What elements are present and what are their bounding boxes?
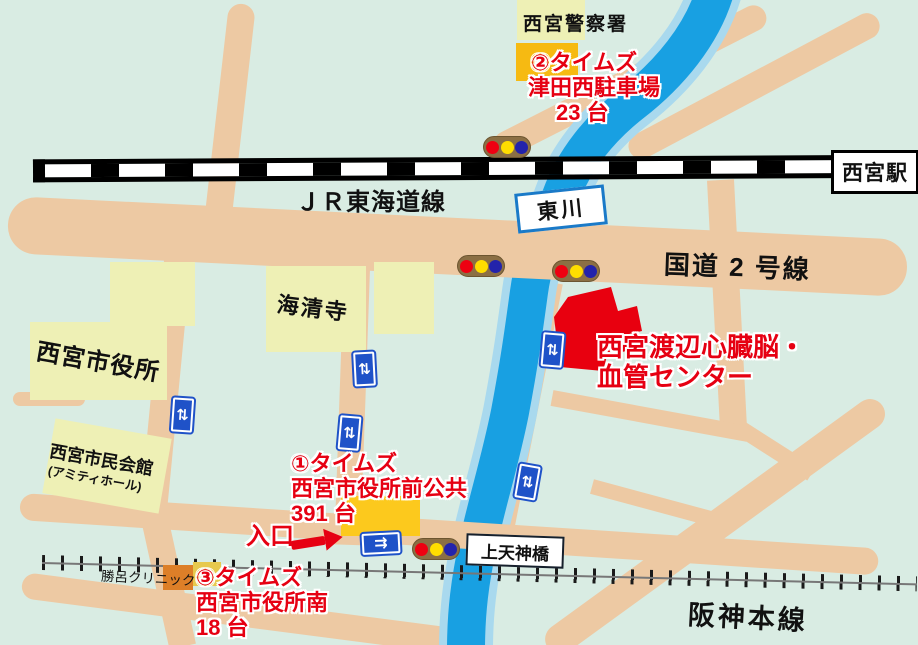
- bridge-label-box: 上天神橋: [465, 533, 564, 568]
- hanshin-line-label: 阪神本線: [687, 593, 809, 638]
- traffic-light: [483, 136, 531, 158]
- crosswalk-icon: ⇅: [171, 397, 194, 432]
- parking-2-line3: 23 台: [556, 100, 660, 125]
- parking-2-line2: 津田西駐車場: [528, 75, 660, 100]
- parking-1-line2: 西宮市役所前公共: [291, 476, 467, 501]
- hospital-label-line1: 西宮渡辺心臓脳・: [597, 332, 805, 362]
- parking-1-label: ①タイムズ 西宮市役所前公共 391 台: [291, 451, 467, 526]
- crosswalk-icon: ⇅: [353, 351, 376, 386]
- signal-red-dot: [460, 260, 473, 273]
- entrance-label: 入口: [246, 524, 294, 549]
- route2-label: 国道 2 号線: [663, 244, 811, 286]
- signal-blue-dot: [515, 141, 528, 154]
- parking-1-line3: 391 台: [291, 501, 467, 526]
- access-map: ⇅ ⇅ ⇅ ⇅ ⇅ ⇉ 西宮駅 東川 上天神橋 西宮警察署 ＪＲ東海道線 国道 …: [0, 0, 918, 645]
- parking-1-line1: ①タイムズ: [291, 451, 467, 476]
- signal-yellow-dot: [430, 543, 443, 556]
- parking-2-line1: ②タイムズ: [531, 50, 660, 75]
- parking-3-label: ③タイムズ 西宮市役所南 18 台: [196, 565, 328, 640]
- signal-yellow-dot: [501, 141, 514, 154]
- entrance-arrow-head: [323, 526, 344, 551]
- parking-3-line1: ③タイムズ: [196, 565, 328, 590]
- crosswalk-icon: ⇅: [541, 332, 565, 368]
- traffic-light: [457, 255, 505, 277]
- signal-yellow-dot: [570, 265, 583, 278]
- police-station-label: 西宮警察署: [523, 9, 628, 36]
- crosswalk-icon: ⇅: [338, 415, 362, 451]
- hospital-label: 西宮渡辺心臓脳・ 血管センター: [597, 332, 805, 392]
- one-way-icon: ⇉: [361, 532, 400, 555]
- signal-red-dot: [486, 141, 499, 154]
- parking-2-label: ②タイムズ 津田西駐車場 23 台: [528, 50, 660, 125]
- parking-3-line2: 西宮市役所南: [196, 590, 328, 615]
- signal-blue-dot: [489, 260, 502, 273]
- signal-red-dot: [555, 265, 568, 278]
- signal-red-dot: [415, 543, 428, 556]
- traffic-light: [412, 538, 460, 560]
- parking-3-line3: 18 台: [196, 615, 328, 640]
- jr-line-label: ＪＲ東海道線: [296, 182, 446, 217]
- hospital-label-line2: 血管センター: [597, 362, 805, 392]
- entrance-arrow-shaft: [291, 535, 326, 549]
- traffic-light: [552, 260, 600, 282]
- signal-yellow-dot: [475, 260, 488, 273]
- station-label-box: 西宮駅: [831, 150, 918, 194]
- signal-blue-dot: [584, 265, 597, 278]
- signal-blue-dot: [444, 543, 457, 556]
